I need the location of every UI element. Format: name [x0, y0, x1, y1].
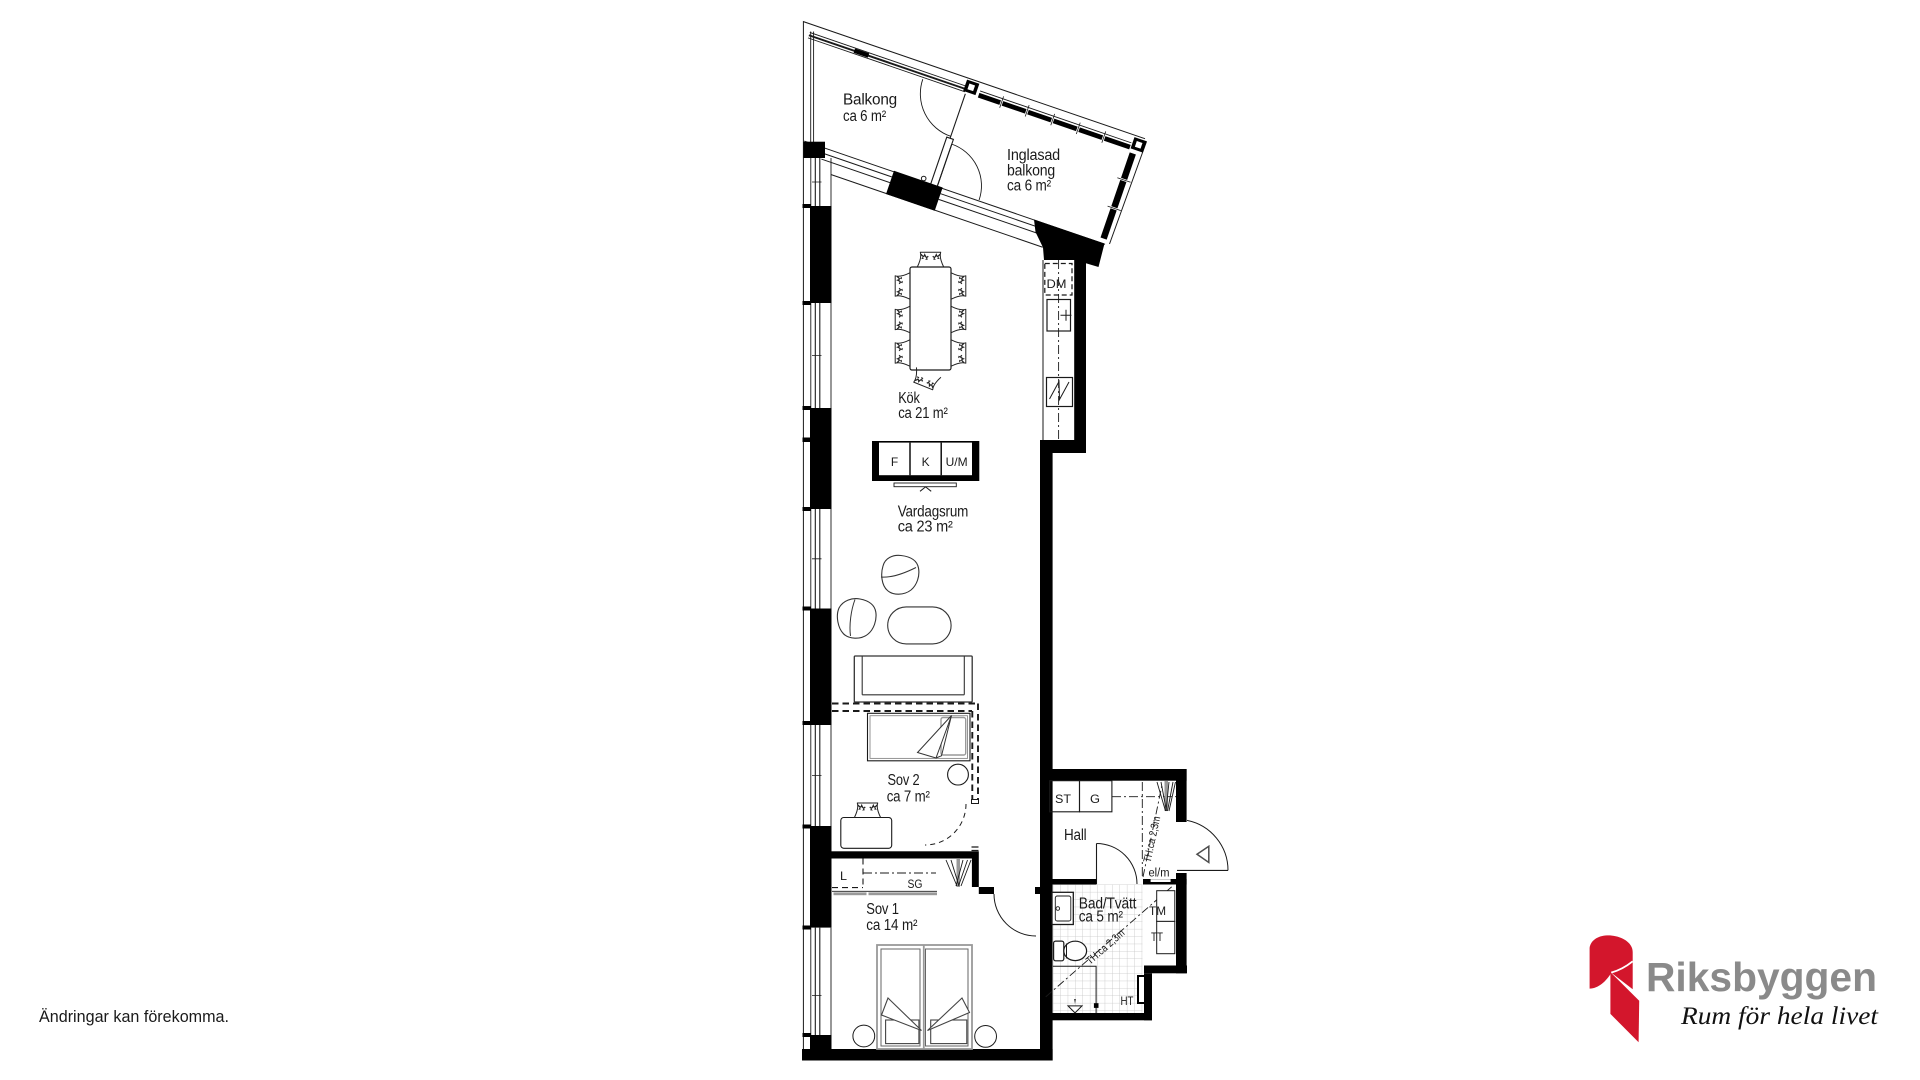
svg-text:ca 7 m²: ca 7 m² — [887, 789, 930, 806]
svg-text:HT: HT — [1121, 994, 1135, 1008]
svg-text:ca 21 m²: ca 21 m² — [898, 405, 948, 422]
svg-text:el/m: el/m — [1149, 868, 1170, 880]
svg-text:ca 6 m²: ca 6 m² — [843, 108, 886, 125]
svg-text:G: G — [1090, 792, 1100, 806]
svg-text:K: K — [922, 455, 930, 469]
svg-text:Sov 1: Sov 1 — [866, 901, 899, 918]
svg-text:ca 5 m²: ca 5 m² — [1079, 909, 1123, 926]
svg-text:Sov 2: Sov 2 — [888, 772, 920, 789]
svg-text:Ändringar kan förekomma.: Ändringar kan förekomma. — [39, 1008, 229, 1026]
svg-text:ST: ST — [1055, 792, 1072, 806]
svg-text:TM: TM — [1149, 904, 1166, 918]
svg-text:TT: TT — [1151, 930, 1164, 944]
svg-text:Inglasad: Inglasad — [1007, 147, 1060, 164]
svg-text:DM: DM — [1047, 277, 1067, 291]
svg-text:U/M: U/M — [946, 455, 968, 469]
svg-text:L: L — [840, 869, 847, 883]
svg-text:Rum för hela livet: Rum för hela livet — [1680, 1003, 1879, 1030]
svg-text:Hall: Hall — [1064, 827, 1087, 844]
svg-text:ca 23 m²: ca 23 m² — [898, 519, 953, 536]
svg-text:Balkong: Balkong — [843, 92, 897, 109]
svg-text:F: F — [891, 455, 898, 469]
svg-text:ca 14 m²: ca 14 m² — [866, 917, 917, 934]
svg-text:SG: SG — [908, 877, 923, 891]
svg-text:Riksbyggen: Riksbyggen — [1646, 954, 1877, 1000]
svg-text:ca 6 m²: ca 6 m² — [1007, 178, 1051, 195]
